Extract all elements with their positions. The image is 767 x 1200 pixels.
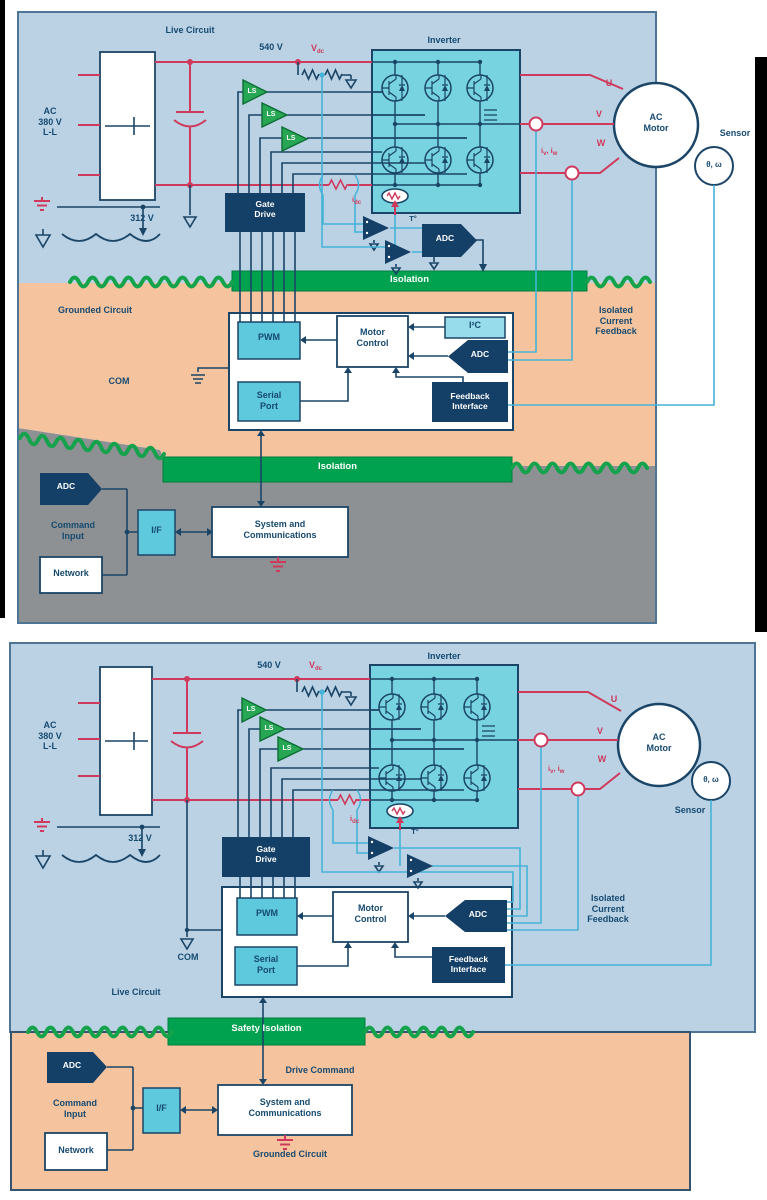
d2-vdc-label: Vdc bbox=[309, 660, 322, 673]
d1-ls1-label: LS bbox=[245, 88, 259, 96]
d1-ls3-label: LS bbox=[284, 135, 298, 143]
d2-idc-label: idc bbox=[350, 815, 359, 826]
d2-grounded-circuit-label: Grounded Circuit bbox=[238, 1149, 342, 1160]
d2-ac-input-label: AC 380 V L-L bbox=[26, 720, 74, 752]
d1-serial-port-label: Serial Port bbox=[238, 390, 300, 411]
d1-isolation-top-label: Isolation bbox=[232, 274, 587, 285]
d1-ls2-label: LS bbox=[264, 111, 278, 119]
d1-motor-control-label: Motor Control bbox=[337, 327, 408, 348]
d2-drive-command-label: Drive Command bbox=[278, 1065, 362, 1076]
d1-vdc-label: Vdc bbox=[311, 43, 324, 56]
d1-gate-drive-label: Gate Drive bbox=[225, 199, 305, 219]
d2-312v-label: 312 V bbox=[118, 833, 162, 844]
d1-phase-v-label: V bbox=[591, 109, 607, 120]
d1-adc-hot-label: ADC bbox=[424, 233, 466, 243]
d1-if-label: I/F bbox=[138, 525, 175, 536]
d2-command-input-label: Command Input bbox=[42, 1098, 108, 1119]
d2-ls2-label: LS bbox=[262, 725, 276, 733]
d1-idc-sub: dc bbox=[354, 200, 361, 206]
d1-phase-w-label: W bbox=[593, 138, 609, 149]
d2-iw-sub: w bbox=[560, 769, 565, 775]
d1-i2c-label: I²C bbox=[445, 320, 505, 331]
d1-grounded-circuit-label: Grounded Circuit bbox=[33, 305, 157, 316]
d2-safety-isolation-label: Safety Isolation bbox=[168, 1023, 365, 1034]
d1-inverter-label: Inverter bbox=[414, 35, 474, 46]
d2-ac-motor-label: AC Motor bbox=[618, 732, 700, 753]
d1-pwm-label: PWM bbox=[238, 332, 300, 343]
d2-gate-drive-label: Gate Drive bbox=[222, 844, 310, 864]
d1-live-circuit-label: Live Circuit bbox=[140, 25, 240, 36]
d1-vdc-sub: dc bbox=[317, 49, 324, 55]
d2-idc-sub: dc bbox=[352, 819, 359, 825]
d2-phase-w-label: W bbox=[594, 754, 610, 765]
d1-system-comms-label: System and Communications bbox=[212, 519, 348, 540]
d1-com-label: COM bbox=[99, 376, 139, 387]
d1-isolated-current-feedback-label: Isolated Current Feedback bbox=[576, 305, 656, 337]
d2-adc-ctrl-label: ADC bbox=[453, 909, 503, 919]
d2-phase-v-label: V bbox=[592, 726, 608, 737]
d1-feedback-interface-label: Feedback Interface bbox=[432, 391, 508, 411]
d2-live-circuit-label: Live Circuit bbox=[88, 987, 184, 998]
d2-network-label: Network bbox=[45, 1145, 107, 1156]
circuit-artwork bbox=[0, 0, 767, 1200]
d2-theta-omega-label: θ, ω bbox=[692, 775, 730, 784]
d2-inverter-label: Inverter bbox=[414, 651, 474, 662]
d2-if-label: I/F bbox=[143, 1103, 180, 1114]
motor-drive-diagrams: Live Circuit AC 380 V L-L 540 V Vdc Inve… bbox=[0, 0, 767, 1200]
d1-ivw-label: iv, iw bbox=[541, 147, 557, 158]
d2-sensor-label: Sensor bbox=[666, 805, 714, 816]
d2-adc-cmd-label: ADC bbox=[48, 1060, 96, 1070]
d1-iw-sub: w bbox=[553, 151, 558, 157]
d1-network-label: Network bbox=[40, 568, 102, 579]
d1-540v-label: 540 V bbox=[248, 42, 294, 53]
d1-312v-label: 312 V bbox=[120, 213, 164, 224]
d2-serial-port-label: Serial Port bbox=[235, 954, 297, 975]
d1-ac-motor-label: AC Motor bbox=[614, 112, 698, 133]
d2-pwm-label: PWM bbox=[237, 908, 297, 919]
d2-motor-control-label: Motor Control bbox=[333, 903, 408, 924]
d1-ac-input-label: AC 380 V L-L bbox=[26, 106, 74, 138]
d2-feedback-interface-label: Feedback Interface bbox=[432, 954, 505, 974]
d1-adc-ctrl-label: ADC bbox=[455, 349, 505, 359]
d2-phase-u-label: U bbox=[606, 694, 622, 705]
d1-temp-label: T° bbox=[404, 215, 422, 224]
d1-command-input-label: Command Input bbox=[40, 520, 106, 541]
d2-isolated-current-feedback-label: Isolated Current Feedback bbox=[568, 893, 648, 925]
d2-540v-label: 540 V bbox=[246, 660, 292, 671]
d1-idc-label: idc bbox=[352, 196, 361, 207]
d1-adc-cmd-label: ADC bbox=[42, 481, 90, 491]
d2-system-comms-label: System and Communications bbox=[218, 1097, 352, 1118]
d2-com-label: COM bbox=[167, 952, 209, 963]
d1-theta-omega-label: θ, ω bbox=[695, 160, 733, 169]
d2-vdc-sub: dc bbox=[315, 666, 322, 672]
d2-ivw-label: iv, iw bbox=[548, 765, 564, 776]
d1-sensor-label: Sensor bbox=[711, 128, 759, 139]
d2-temp-label: T° bbox=[406, 828, 424, 837]
d1-isolation-bottom-label: Isolation bbox=[163, 461, 512, 472]
d2-ls1-label: LS bbox=[244, 706, 258, 714]
d2-ls3-label: LS bbox=[280, 745, 294, 753]
d1-phase-u-label: U bbox=[601, 78, 617, 89]
